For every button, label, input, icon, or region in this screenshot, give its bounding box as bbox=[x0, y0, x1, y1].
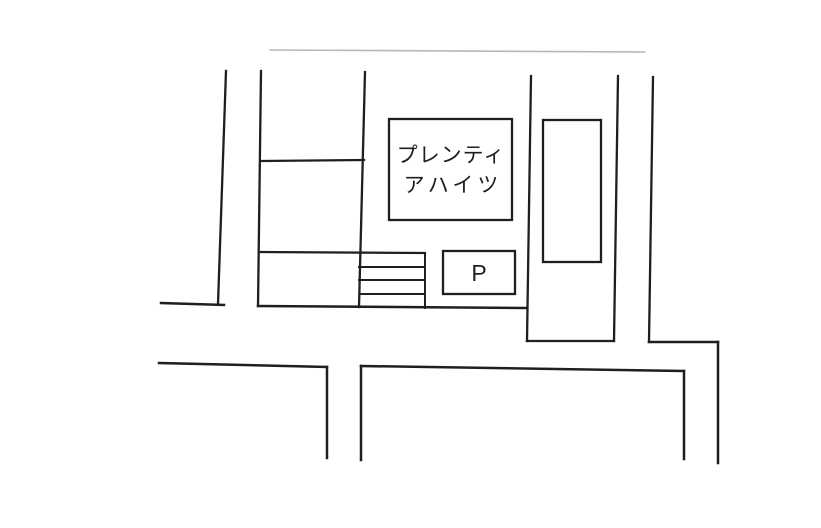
building-name-line2: アハイツ bbox=[404, 174, 503, 197]
site-map-drawing: プレンティ アハイツ P bbox=[0, 0, 821, 528]
road-north-edge-west bbox=[161, 303, 224, 305]
site-map: プレンティ アハイツ P bbox=[0, 0, 821, 528]
building-name-line1: プレンティ bbox=[397, 144, 506, 167]
parking-label: P bbox=[471, 260, 486, 286]
faint-scan-line bbox=[270, 50, 645, 52]
main-building-outline bbox=[389, 119, 512, 220]
street-line-east-1 bbox=[527, 76, 531, 341]
lot-divider-lower bbox=[259, 252, 425, 253]
road-north-edge-mid bbox=[258, 306, 527, 308]
street-line-east-3 bbox=[649, 77, 653, 342]
road-south-edge-west bbox=[159, 363, 327, 367]
lot-divider-upper bbox=[261, 160, 364, 161]
street-line-east-2 bbox=[614, 76, 618, 341]
street-line-west-outer bbox=[218, 71, 226, 304]
road-south-edge-east bbox=[361, 366, 684, 371]
street-line-west-inner bbox=[258, 71, 261, 306]
neighbor-building-outline bbox=[543, 120, 601, 262]
street-line-center bbox=[359, 72, 365, 307]
